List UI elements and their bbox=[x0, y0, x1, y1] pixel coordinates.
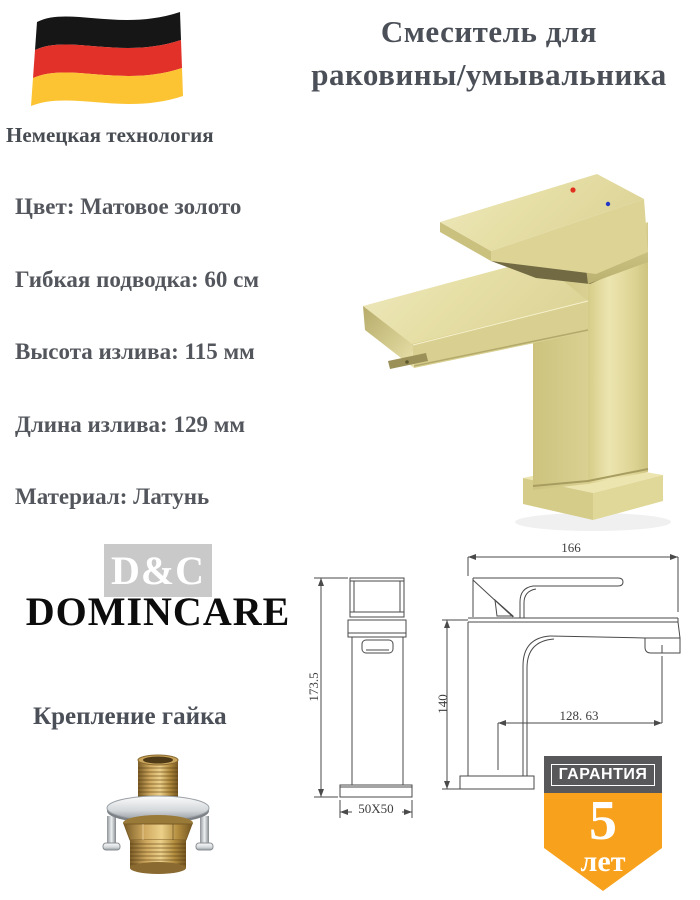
warranty-unit: лет bbox=[544, 845, 662, 879]
faucet-product-image bbox=[340, 160, 700, 540]
page-title: Смеситель для раковины/умывальника bbox=[283, 10, 695, 96]
side-spout-label: 128. 63 bbox=[560, 708, 599, 723]
spec-color: Цвет: Матовое золото bbox=[15, 194, 241, 220]
warranty-header-text: ГАРАНТИЯ bbox=[551, 764, 656, 786]
spec-hose: Гибкая подводка: 60 см bbox=[15, 267, 259, 293]
mount-screw-right bbox=[200, 816, 209, 846]
title-line-1: Смеситель для bbox=[283, 10, 695, 53]
spec-spout-height: Высота излива: 115 мм bbox=[15, 339, 255, 365]
hot-indicator-dot bbox=[570, 187, 575, 192]
front-height-label: 173.5 bbox=[306, 672, 321, 701]
brand-abbr: D&C bbox=[111, 547, 205, 594]
front-base-label: 50X50 bbox=[358, 801, 393, 816]
product-card: Смеситель для раковины/умывальника Немец… bbox=[0, 0, 700, 900]
brand-name: DOMINCARE bbox=[8, 588, 308, 635]
spec-material: Материал: Латунь bbox=[15, 484, 209, 510]
german-flag-icon bbox=[28, 6, 198, 111]
mount-screw-left bbox=[107, 816, 116, 846]
warranty-header: ГАРАНТИЯ bbox=[544, 756, 662, 793]
mounting-nut-image bbox=[98, 750, 218, 882]
mount-label: Крепление гайка bbox=[33, 703, 227, 731]
subtitle: Немецкая технология bbox=[6, 123, 214, 148]
side-height-label: 140 bbox=[437, 694, 450, 714]
side-width-label: 166 bbox=[561, 540, 581, 555]
warranty-years: 5 bbox=[544, 789, 662, 853]
title-line-2: раковины/умывальника bbox=[283, 53, 695, 96]
warranty-shield: 5 лет bbox=[544, 793, 662, 891]
warranty-badge: ГАРАНТИЯ 5 лет bbox=[544, 756, 662, 891]
cold-indicator-dot bbox=[606, 202, 610, 206]
spec-spout-length: Длина излива: 129 мм bbox=[15, 412, 245, 438]
